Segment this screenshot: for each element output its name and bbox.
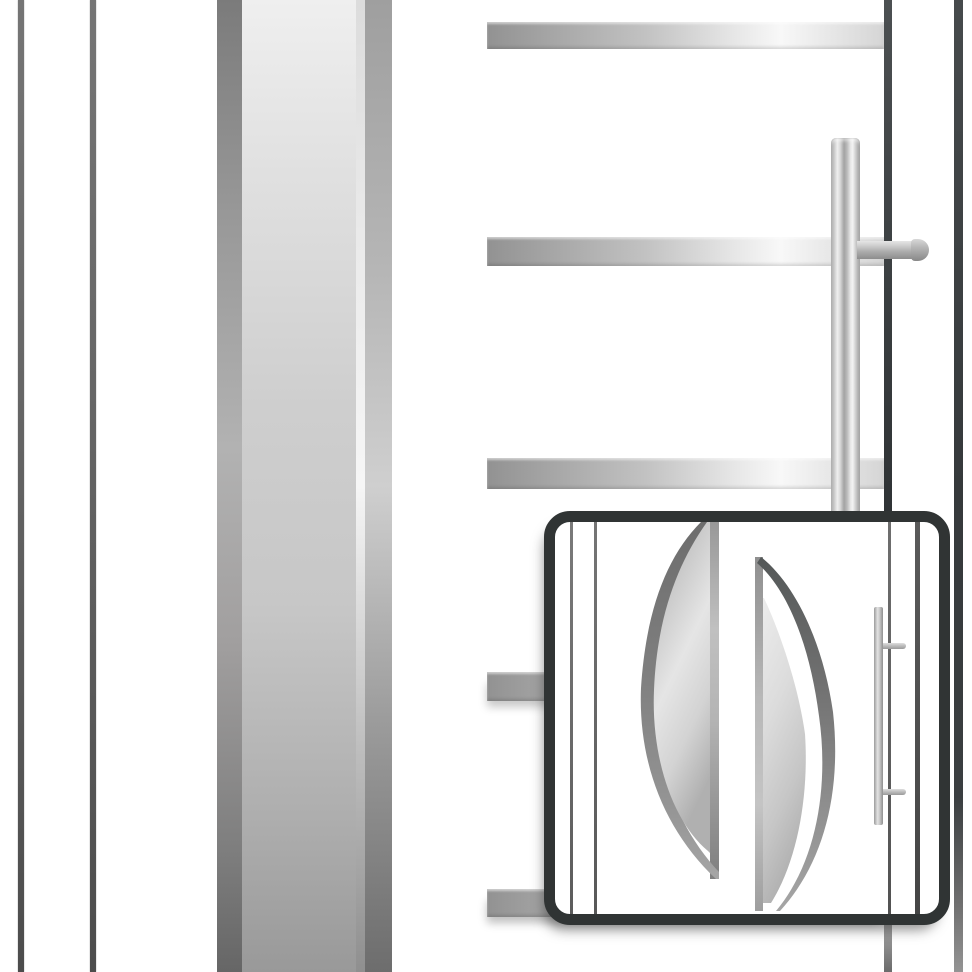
pilaster-left-bevel	[217, 0, 242, 972]
steel-application-bar-3	[487, 458, 884, 489]
steel-pilaster	[217, 0, 392, 972]
door-leaf-edge-line-bottom	[884, 925, 892, 972]
thumb-handle-mount-upper	[882, 643, 906, 649]
handle-mount-cap	[911, 239, 929, 261]
glass-motif-right	[755, 557, 835, 911]
steel-application-bar-2	[487, 237, 884, 266]
frame-line-inner	[90, 0, 96, 972]
handle-mount-shaft	[857, 241, 915, 259]
door-zoom-viewer[interactable]	[0, 0, 972, 972]
pilaster-right-bevel	[365, 0, 392, 972]
frame-line-outer	[18, 0, 24, 972]
thumb-handle-mount-lower	[882, 789, 906, 795]
thumb-handle-bar	[874, 607, 883, 825]
steel-application-bar-1	[487, 22, 884, 49]
door-handle-bar	[831, 138, 860, 515]
pilaster-body	[242, 0, 356, 972]
pilaster-sheen	[356, 0, 365, 972]
door-frame-edge-line	[954, 0, 963, 972]
glass-motif-left	[641, 522, 719, 879]
door-preview-inset[interactable]	[544, 511, 950, 925]
